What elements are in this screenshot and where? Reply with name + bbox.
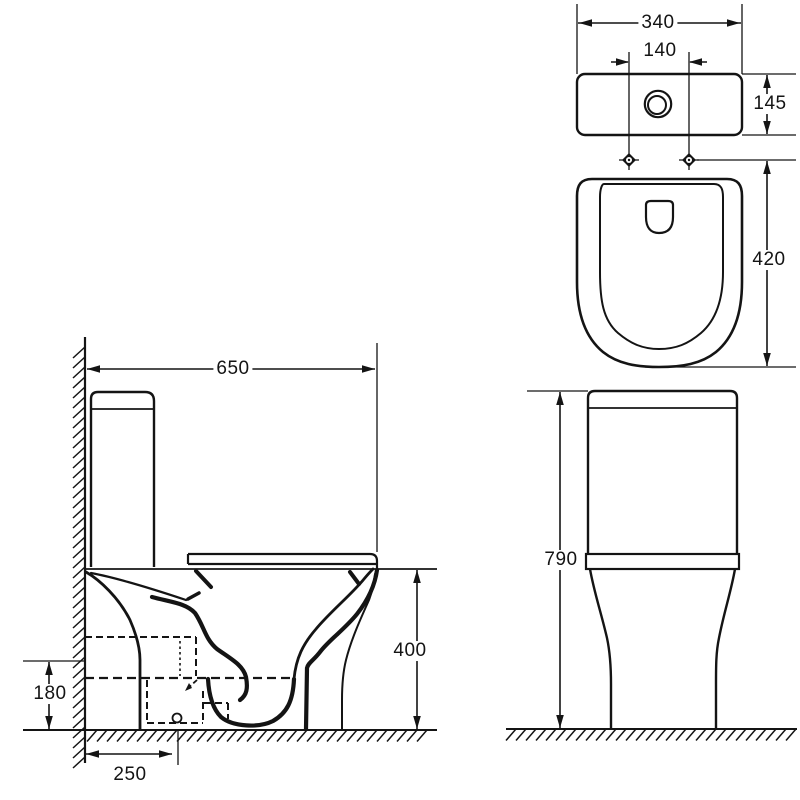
top-view <box>577 74 742 367</box>
dim-label-340: 340 <box>638 13 677 33</box>
floor-hatching <box>506 729 796 741</box>
pedestal-front <box>590 569 735 729</box>
dim-label-180: 180 <box>30 684 69 704</box>
bowl-back-outer <box>86 572 140 729</box>
cistern-front <box>588 391 737 554</box>
flush-button-inner <box>648 96 666 114</box>
flow-arrowhead <box>185 683 192 691</box>
technical-drawing-canvas: 650 400 180 250 340 140 145 420 790 <box>0 0 800 800</box>
bowl-front-inner <box>294 569 373 679</box>
wall-hatching <box>73 347 85 768</box>
cistern-side <box>91 392 154 567</box>
dim-label-400: 400 <box>390 641 429 661</box>
side-view <box>23 337 437 768</box>
fixing-keyhole <box>173 714 182 723</box>
dim-label-250: 250 <box>110 765 149 785</box>
hidden-trap-outline <box>85 637 292 723</box>
seat-inner-outline <box>600 184 723 349</box>
wall <box>73 337 85 768</box>
dim-label-790: 790 <box>541 550 580 570</box>
seat-band-front <box>586 554 739 569</box>
seat-side <box>85 554 437 569</box>
bowl-outer-outline <box>577 179 742 367</box>
dim-label-420: 420 <box>749 250 788 270</box>
cistern-top <box>577 74 742 135</box>
dim-label-145: 145 <box>750 94 789 114</box>
seat-hinge-mark <box>196 571 211 587</box>
hinge-tick <box>188 593 199 599</box>
bowl-back-inner-curve <box>152 597 247 700</box>
fixing-hole-markers <box>619 150 699 170</box>
floor-hatching <box>87 730 427 742</box>
dim-label-650: 650 <box>213 359 252 379</box>
floor-front <box>506 729 797 741</box>
toilet-dimension-drawing <box>0 0 800 800</box>
bowl-side-profile <box>86 569 377 729</box>
dim-label-140: 140 <box>640 41 679 61</box>
flush-inlet-shape <box>646 201 673 233</box>
seat-bumper-mark <box>350 572 359 584</box>
